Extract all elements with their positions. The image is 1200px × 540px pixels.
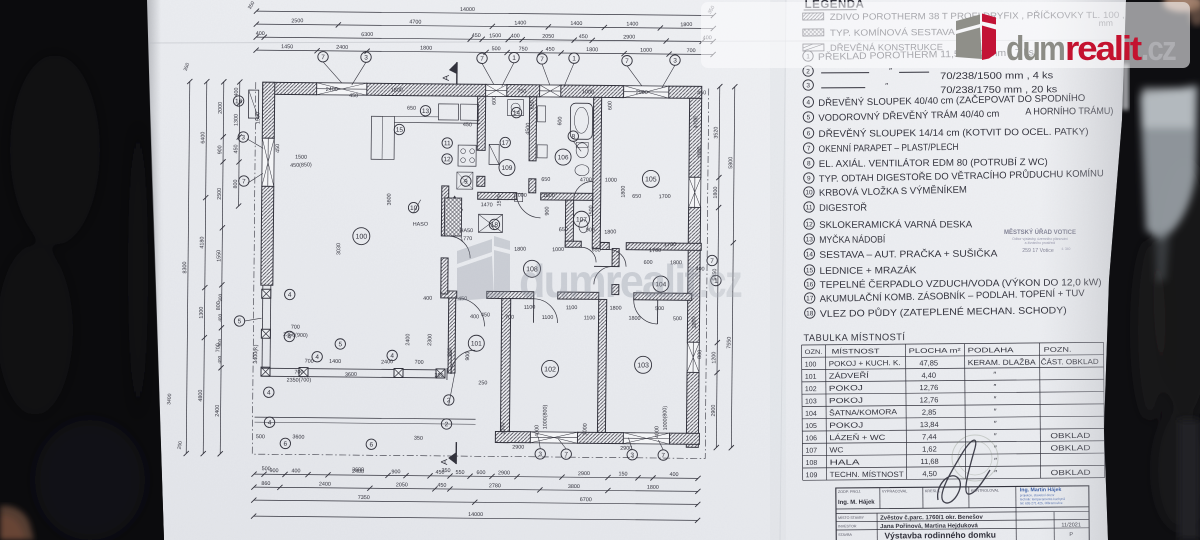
svg-text:dum: dum [1006,30,1065,68]
svg-text:realit: realit [1065,30,1142,68]
svg-text:.cz: .cz [1141,30,1176,68]
